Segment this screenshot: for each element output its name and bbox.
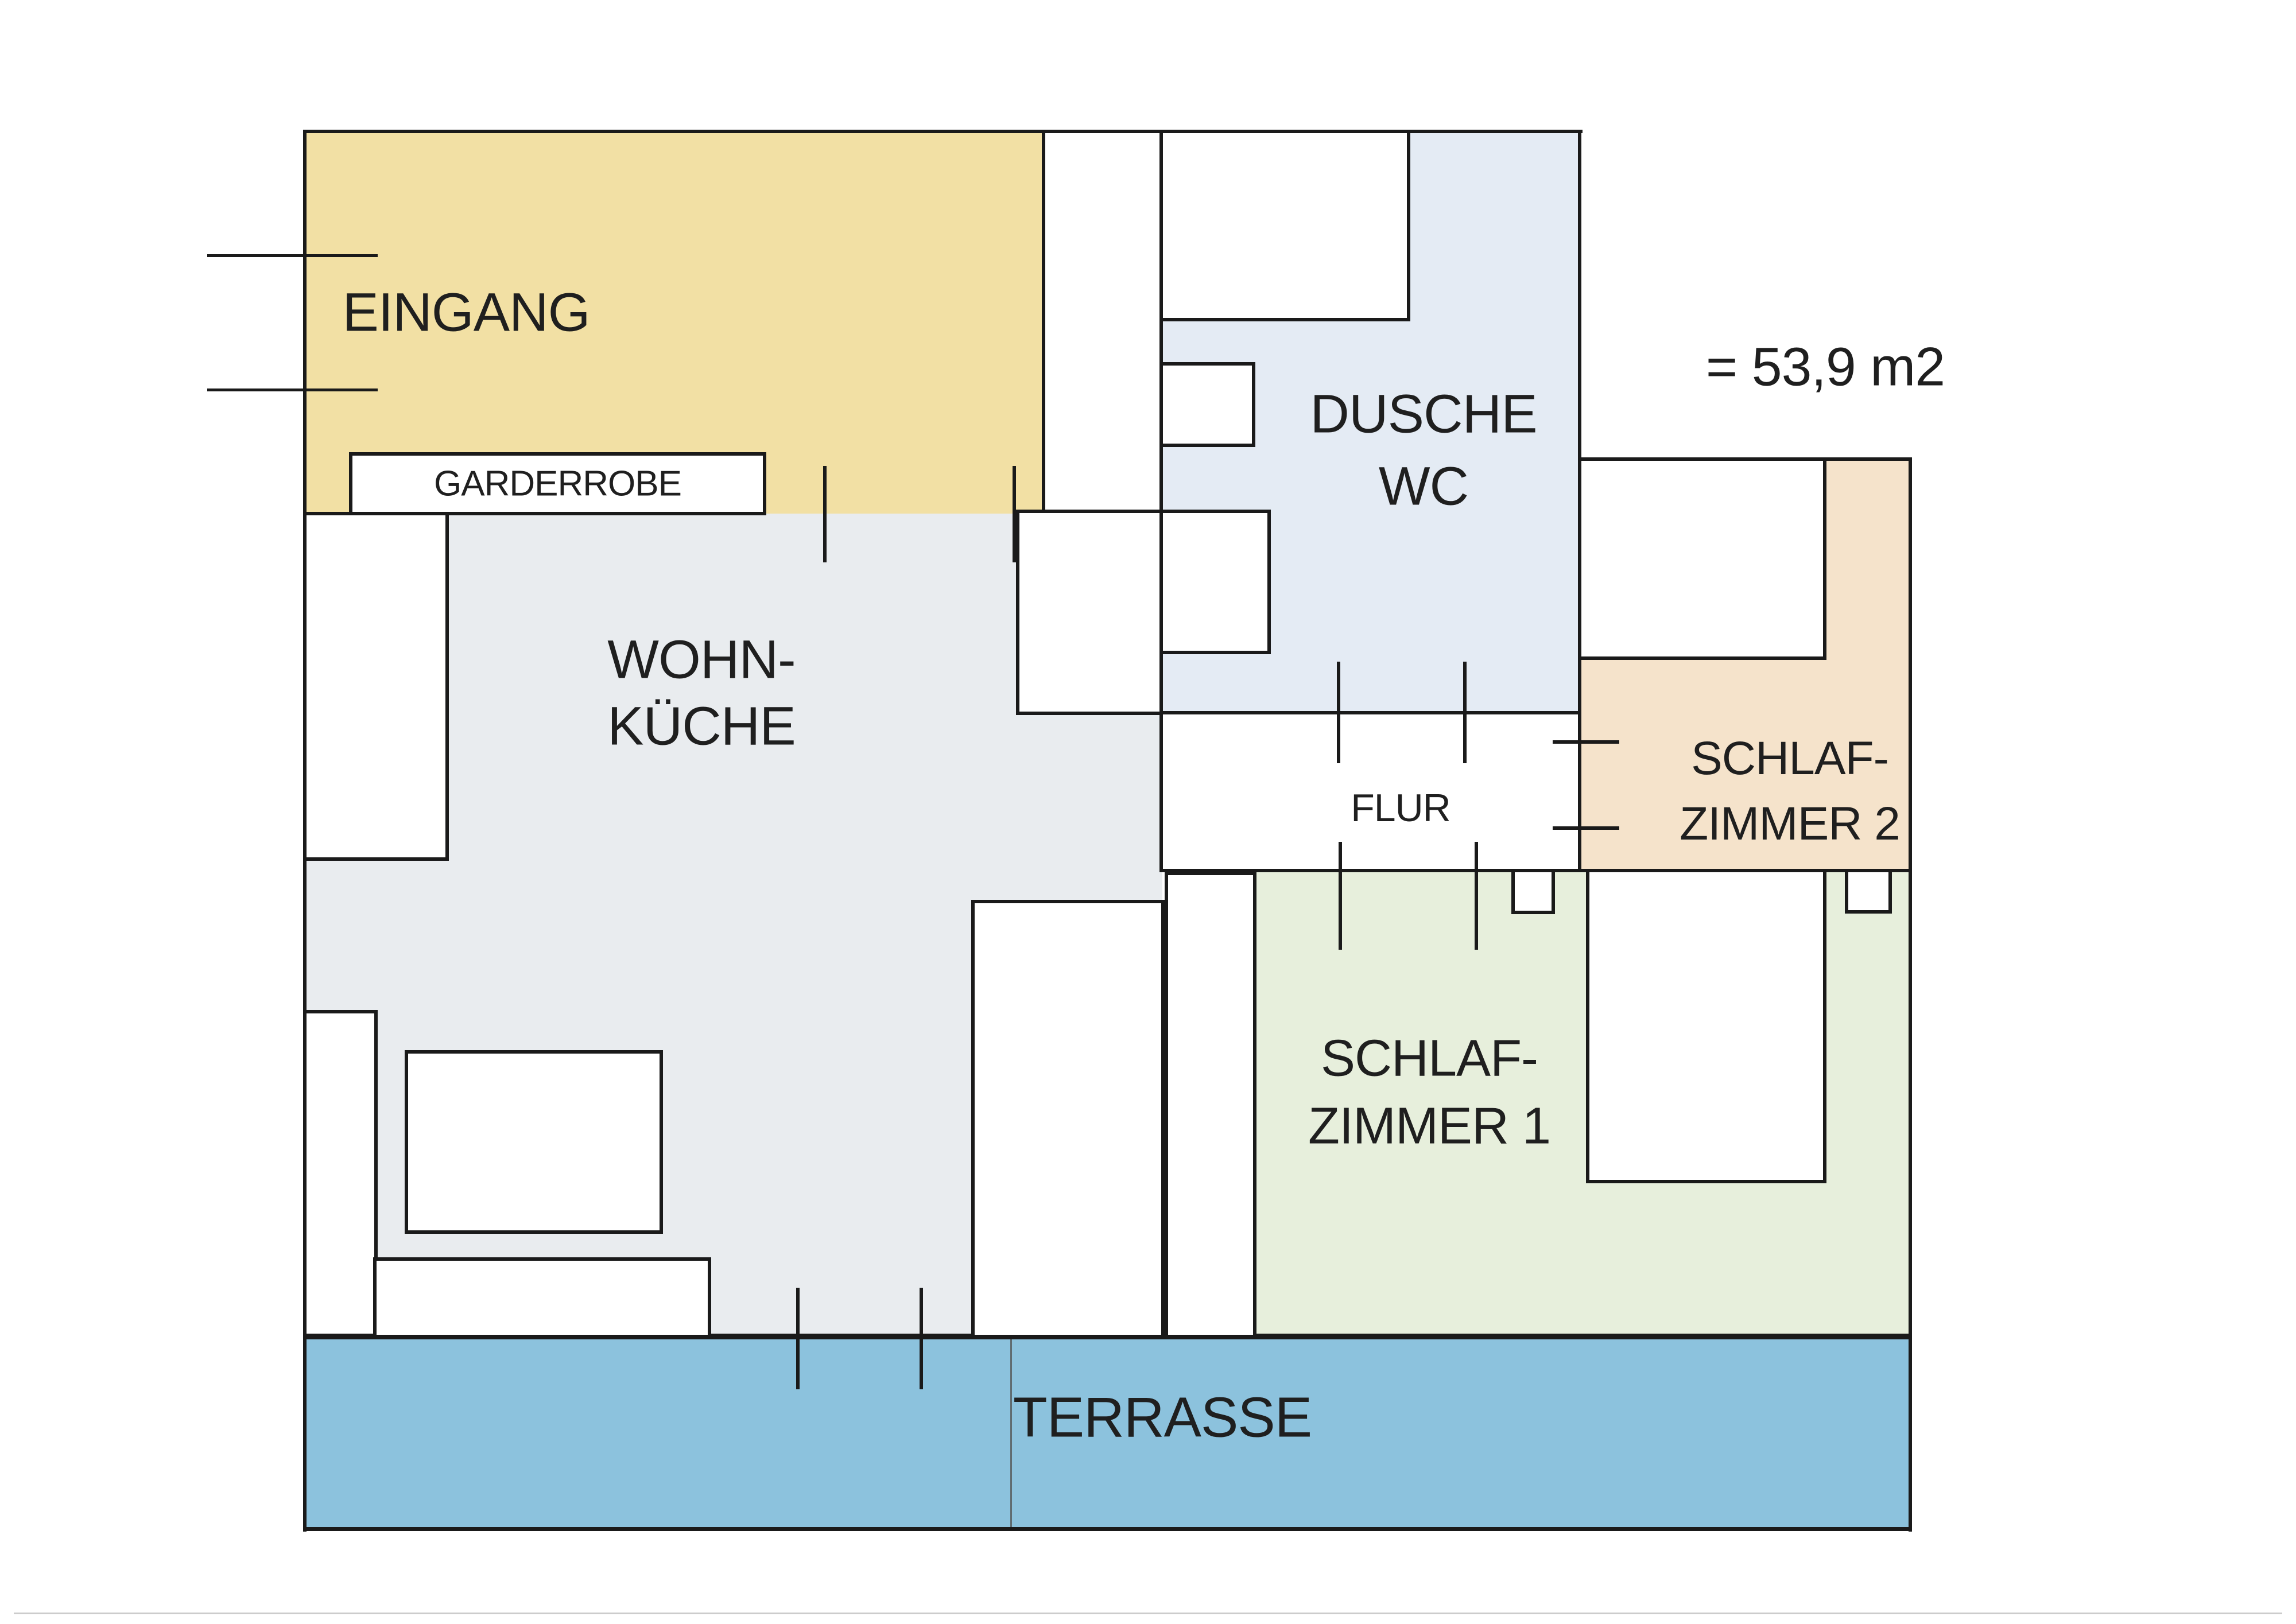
door-tick-flur-top-1 bbox=[1337, 662, 1340, 763]
eingang-label: EINGANG bbox=[342, 282, 589, 344]
door-tick-schlafzimmer2-1 bbox=[1553, 740, 1619, 744]
dimension-tick-left-2 bbox=[207, 388, 378, 391]
wall-stair-bottom bbox=[303, 857, 449, 861]
door-tick-flur-bottom-1 bbox=[1339, 842, 1342, 950]
wohn-kueche-label-line1: WOHN- bbox=[607, 629, 795, 691]
bed-schlafzimmer-2 bbox=[1578, 457, 1826, 660]
door-tick-terrasse-1 bbox=[796, 1288, 800, 1389]
page-scan-line bbox=[14, 1613, 2282, 1614]
door-tick-flur-bottom-2 bbox=[1475, 842, 1478, 950]
terrace-divider-line bbox=[1010, 1339, 1012, 1527]
kitchen-counter bbox=[1016, 510, 1163, 715]
wall-stair-right bbox=[445, 514, 449, 861]
schlafzimmer2-label-line2: ZIMMER 2 bbox=[1680, 797, 1900, 851]
shower-tray bbox=[1159, 130, 1410, 321]
dusche-wc-label-line1: DUSCHE bbox=[1310, 383, 1537, 446]
tall-cabinet bbox=[971, 900, 1165, 1338]
washbasin bbox=[1159, 362, 1255, 447]
wall-left bbox=[303, 130, 307, 1532]
toilet bbox=[1159, 510, 1271, 654]
floor-plan: GARDERROBE EINGANG DUSCHE WC = 53,9 m2 W… bbox=[0, 0, 2296, 1624]
wall-terrace-bottom bbox=[303, 1527, 1912, 1531]
wardrobe-box: GARDERROBE bbox=[349, 452, 766, 515]
sideboard bbox=[373, 1257, 711, 1338]
dimension-tick-left-1 bbox=[207, 254, 378, 257]
schlafzimmer2-label-line1: SCHLAF- bbox=[1691, 732, 1888, 786]
wall-niche-2 bbox=[1845, 869, 1892, 914]
cabinet bbox=[1165, 872, 1256, 1338]
wall-eingang-bottom bbox=[303, 512, 352, 515]
garderrobe-label: GARDERROBE bbox=[434, 464, 681, 504]
door-tick-terrasse-2 bbox=[920, 1288, 923, 1389]
wall-niche-1 bbox=[1511, 869, 1555, 914]
dusche-wc-label-line2: WC bbox=[1379, 456, 1468, 518]
door-tick-schlafzimmer2-2 bbox=[1553, 826, 1619, 830]
bed-schlafzimmer-1 bbox=[1586, 869, 1826, 1183]
area-annotation: = 53,9 m2 bbox=[1706, 336, 1945, 399]
wall-bath-bottom bbox=[1159, 711, 1581, 714]
wall-eingang-right bbox=[1042, 130, 1045, 515]
flur-label: FLUR bbox=[1351, 786, 1450, 830]
door-tick-eingang-2 bbox=[1013, 466, 1016, 562]
wall-niche-top bbox=[303, 1010, 378, 1013]
wohn-kueche-label-line2: KÜCHE bbox=[607, 696, 796, 758]
door-tick-eingang-1 bbox=[823, 466, 827, 562]
schlafzimmer1-label-line1: SCHLAF- bbox=[1321, 1029, 1538, 1089]
schlafzimmer1-label-line2: ZIMMER 1 bbox=[1308, 1097, 1550, 1156]
wall-right bbox=[1909, 457, 1912, 1532]
terrasse-label: TERRASSE bbox=[1013, 1385, 1312, 1450]
door-tick-flur-top-2 bbox=[1463, 662, 1467, 763]
sofa bbox=[405, 1050, 663, 1234]
